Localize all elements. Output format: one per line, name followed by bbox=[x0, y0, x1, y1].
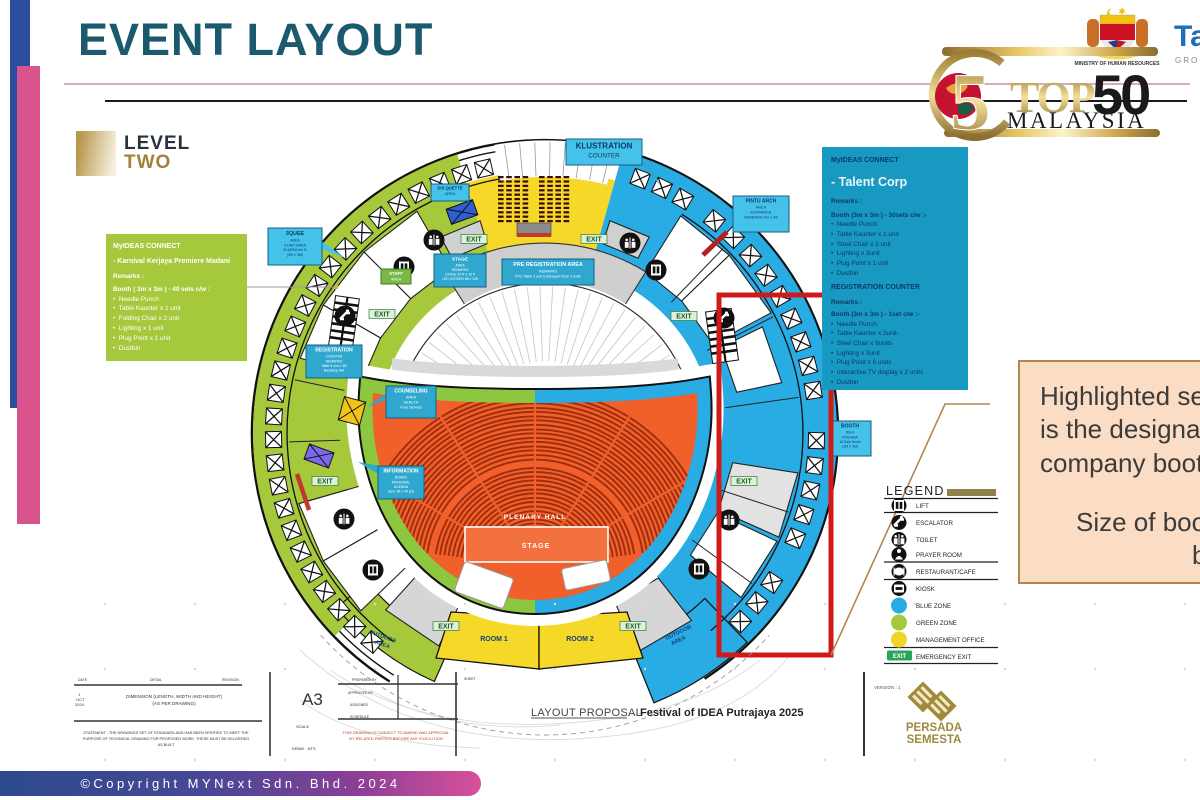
svg-text:COUNTER: COUNTER bbox=[588, 153, 620, 160]
svg-text:REMARKS: REMARKS bbox=[539, 270, 557, 274]
svg-text:SCALE: SCALE bbox=[296, 724, 309, 729]
svg-text:Backdrop 8M: Backdrop 8M bbox=[324, 369, 344, 373]
svg-text:SHEET: SHEET bbox=[464, 677, 477, 681]
svg-text:PREPARED BY: PREPARED BY bbox=[352, 678, 377, 682]
svg-text:LAYOUT PROPOSAL: LAYOUT PROPOSAL bbox=[531, 707, 642, 719]
svg-text:EMERGENCY EXIT: EMERGENCY EXIT bbox=[916, 654, 971, 661]
svg-text:EXIT: EXIT bbox=[466, 237, 482, 244]
svg-text:STAGE: STAGE bbox=[452, 256, 469, 262]
svg-text:EXIT: EXIT bbox=[317, 479, 333, 486]
svg-text:LED SCREEN 8ft x 12ft: LED SCREEN 8ft x 12ft bbox=[442, 277, 478, 281]
svg-text:Ta: Ta bbox=[1174, 20, 1200, 53]
svg-text:PRE REGISTRATION AREA: PRE REGISTRATION AREA bbox=[513, 262, 583, 268]
svg-text:GERBANG 6m x 4m: GERBANG 6m x 4m bbox=[744, 216, 779, 220]
svg-text:GREEN ZONE: GREEN ZONE bbox=[916, 620, 957, 627]
svg-text:16 Sale Booth: 16 Sale Booth bbox=[839, 440, 860, 444]
svg-text:AREA: AREA bbox=[391, 278, 402, 282]
svg-text:Size: 8ft x 4ft (2t): Size: 8ft x 4ft (2t) bbox=[388, 490, 414, 494]
svg-text:REGISTRATION: REGISTRATION bbox=[315, 348, 353, 354]
svg-text:ASSIGNED: ASSIGNED bbox=[350, 703, 369, 707]
svg-text:MALAYSIA: MALAYSIA bbox=[1007, 108, 1146, 133]
svg-text:EXIT: EXIT bbox=[676, 314, 692, 321]
svg-text:DATE: DATE bbox=[78, 678, 88, 682]
svg-text:DRAW - NTS: DRAW - NTS bbox=[292, 746, 316, 751]
svg-text:AREA: AREA bbox=[455, 263, 465, 267]
svg-text:(3M x 3M): (3M x 3M) bbox=[287, 253, 303, 257]
svg-text:LEGEND: LEGEND bbox=[886, 484, 945, 498]
svg-text:EXIT: EXIT bbox=[893, 654, 907, 660]
svg-text:COUNSELING: COUNSELING bbox=[394, 389, 427, 395]
svg-text:Free Service: Free Service bbox=[400, 406, 422, 410]
svg-text:PRAYER ROOM: PRAYER ROOM bbox=[916, 552, 962, 559]
svg-text:EXIT: EXIT bbox=[586, 237, 602, 244]
svg-text:A3: A3 bbox=[302, 690, 323, 709]
svg-text:APPROVED BY: APPROVED BY bbox=[348, 691, 374, 695]
svg-text:ESCALATOR: ESCALATOR bbox=[916, 520, 953, 527]
svg-text:RESTAURANT/CAFE: RESTAURANT/CAFE bbox=[916, 569, 976, 576]
svg-text:TOILET: TOILET bbox=[916, 537, 938, 544]
svg-text:AREA: AREA bbox=[290, 239, 300, 243]
svg-text:AREA: AREA bbox=[445, 192, 456, 196]
svg-text:BOARD: BOARD bbox=[395, 476, 408, 480]
svg-text:INFORMATION: INFORMATION bbox=[384, 469, 419, 475]
svg-text:Table 6 unit x 3M: Table 6 unit x 3M bbox=[321, 364, 347, 368]
svg-text:STATEMENT : THE DRAWINGS SET O: STATEMENT : THE DRAWINGS SET OF STANDARD… bbox=[83, 731, 249, 735]
svg-text:REMARKS: REMARKS bbox=[326, 359, 344, 363]
svg-text:KIOSK: KIOSK bbox=[916, 586, 936, 593]
svg-text:GRO: GRO bbox=[1175, 56, 1199, 65]
svg-text:VERSION : 1: VERSION : 1 bbox=[874, 685, 901, 690]
svg-text:STAFF: STAFF bbox=[389, 271, 403, 276]
svg-text:SCHEDULE: SCHEDULE bbox=[350, 715, 370, 719]
svg-text:PERSADA: PERSADA bbox=[906, 722, 962, 734]
svg-text:PURPOSE OF TECHNICAL DRAWING F: PURPOSE OF TECHNICAL DRAWING FOR PROPOSE… bbox=[83, 737, 249, 741]
svg-text:EXIT: EXIT bbox=[736, 479, 752, 486]
svg-text:BY RELATED PARTIES BEFORE ANY: BY RELATED PARTIES BEFORE ANY EXECUTION bbox=[349, 736, 443, 741]
svg-text:EXIT: EXIT bbox=[438, 624, 454, 631]
svg-text:BLUE ZONE: BLUE ZONE bbox=[916, 603, 951, 610]
svg-text:DETAIL: DETAIL bbox=[150, 678, 162, 682]
svg-text:(3M X 3M): (3M X 3M) bbox=[842, 445, 858, 449]
svg-text:STAGE 24 ft X 16 ft: STAGE 24 ft X 16 ft bbox=[445, 273, 475, 277]
svg-text:REMARKS: REMARKS bbox=[452, 268, 470, 272]
svg-text:3QUEE: 3QUEE bbox=[286, 231, 305, 237]
svg-text:SEMESTA: SEMESTA bbox=[907, 734, 962, 746]
svg-text:REVISION: REVISION bbox=[222, 678, 239, 682]
svg-text:Festival of IDEA Putrajaya 202: Festival of IDEA Putrajaya 2025 bbox=[640, 707, 803, 719]
svg-text:STAGE: STAGE bbox=[522, 543, 551, 550]
svg-text:PENJANA: PENJANA bbox=[842, 435, 858, 439]
svg-text:COUNTER: COUNTER bbox=[326, 355, 343, 359]
svg-text:4 UNIT AREA: 4 UNIT AREA bbox=[284, 243, 307, 247]
svg-text:AS BUILT: AS BUILT bbox=[158, 743, 175, 747]
svg-text:(AS PER DRAWING): (AS PER DRAWING) bbox=[152, 701, 196, 706]
svg-text:DIMENSION (LENGTH, WIDTH AND H: DIMENSION (LENGTH, WIDTH AND HEIGHT) bbox=[126, 694, 222, 699]
svg-text:PLENARY HALL: PLENARY HALL bbox=[504, 514, 567, 521]
svg-text:THIS DRAWING IS SUBJECT TO AME: THIS DRAWING IS SUBJECT TO AMEND AND APP… bbox=[343, 730, 451, 735]
svg-text:KLUSTRATION: KLUSTRATION bbox=[576, 142, 633, 151]
svg-text:IDEA: IDEA bbox=[846, 431, 855, 435]
svg-text:PVC Table 3 unit & Banquet Cha: PVC Table 3 unit & Banquet Chair 3 units bbox=[515, 274, 581, 278]
svg-text:BOOTH: BOOTH bbox=[841, 424, 859, 430]
svg-text:PERSONAL: PERSONAL bbox=[392, 480, 411, 484]
svg-text:5: 5 bbox=[950, 56, 991, 147]
svg-text:ENTRANCE: ENTRANCE bbox=[751, 211, 772, 215]
svg-text:EXIT: EXIT bbox=[625, 624, 641, 631]
svg-text:W AREA 4m B: W AREA 4m B bbox=[283, 248, 307, 252]
svg-text:MANAGEMENT OFFICE: MANAGEMENT OFFICE bbox=[916, 637, 985, 644]
svg-text:LIFT: LIFT bbox=[916, 503, 929, 510]
svg-text:AGENDA: AGENDA bbox=[394, 485, 409, 489]
svg-text:ROOM 2: ROOM 2 bbox=[566, 636, 594, 643]
svg-text:AREA: AREA bbox=[406, 396, 417, 400]
svg-text:ROOM 1: ROOM 1 bbox=[480, 636, 508, 643]
svg-text:ANCH: ANCH bbox=[756, 206, 767, 210]
svg-text:PINTU ARCH: PINTU ARCH bbox=[746, 199, 777, 205]
svg-text:DIS QUETTE: DIS QUETTE bbox=[437, 186, 462, 191]
svg-text:EXIT: EXIT bbox=[374, 312, 390, 319]
svg-text:2024: 2024 bbox=[75, 702, 85, 707]
svg-text:HEALTH: HEALTH bbox=[404, 401, 419, 405]
